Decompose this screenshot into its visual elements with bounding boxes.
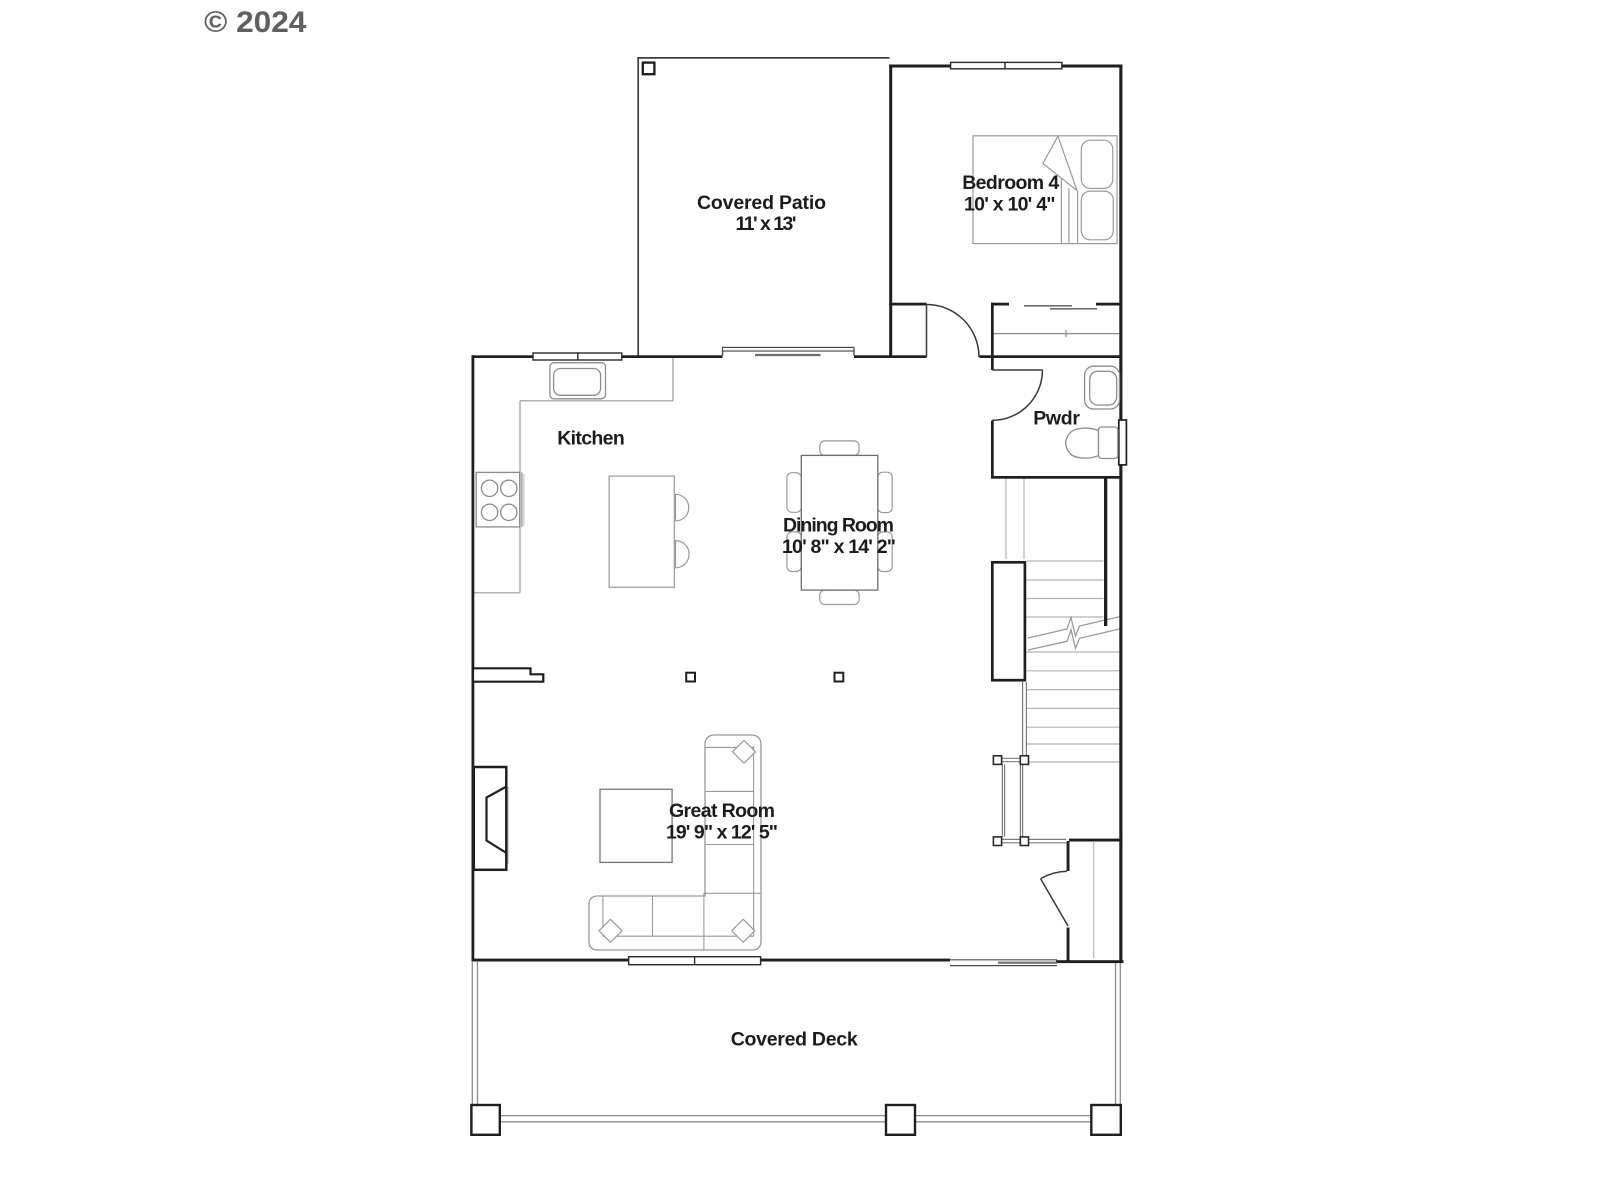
svg-text:Bedroom 4: Bedroom 4	[962, 172, 1059, 194]
svg-text:© 2024: © 2024	[204, 6, 307, 39]
svg-text:10' 8" x 14' 2": 10' 8" x 14' 2"	[782, 536, 896, 558]
svg-text:Kitchen: Kitchen	[557, 427, 625, 449]
svg-text:Dining Room: Dining Room	[783, 514, 894, 536]
svg-text:Covered Patio: Covered Patio	[697, 192, 826, 214]
svg-text:Great Room: Great Room	[669, 800, 775, 822]
svg-text:Covered Deck: Covered Deck	[731, 1029, 858, 1051]
svg-text:Pwdr: Pwdr	[1033, 408, 1080, 430]
svg-text:11' x 13': 11' x 13'	[736, 213, 797, 235]
svg-text:10' x 10' 4": 10' x 10' 4"	[964, 194, 1056, 216]
svg-text:19' 9" x 12' 5": 19' 9" x 12' 5"	[666, 821, 778, 843]
